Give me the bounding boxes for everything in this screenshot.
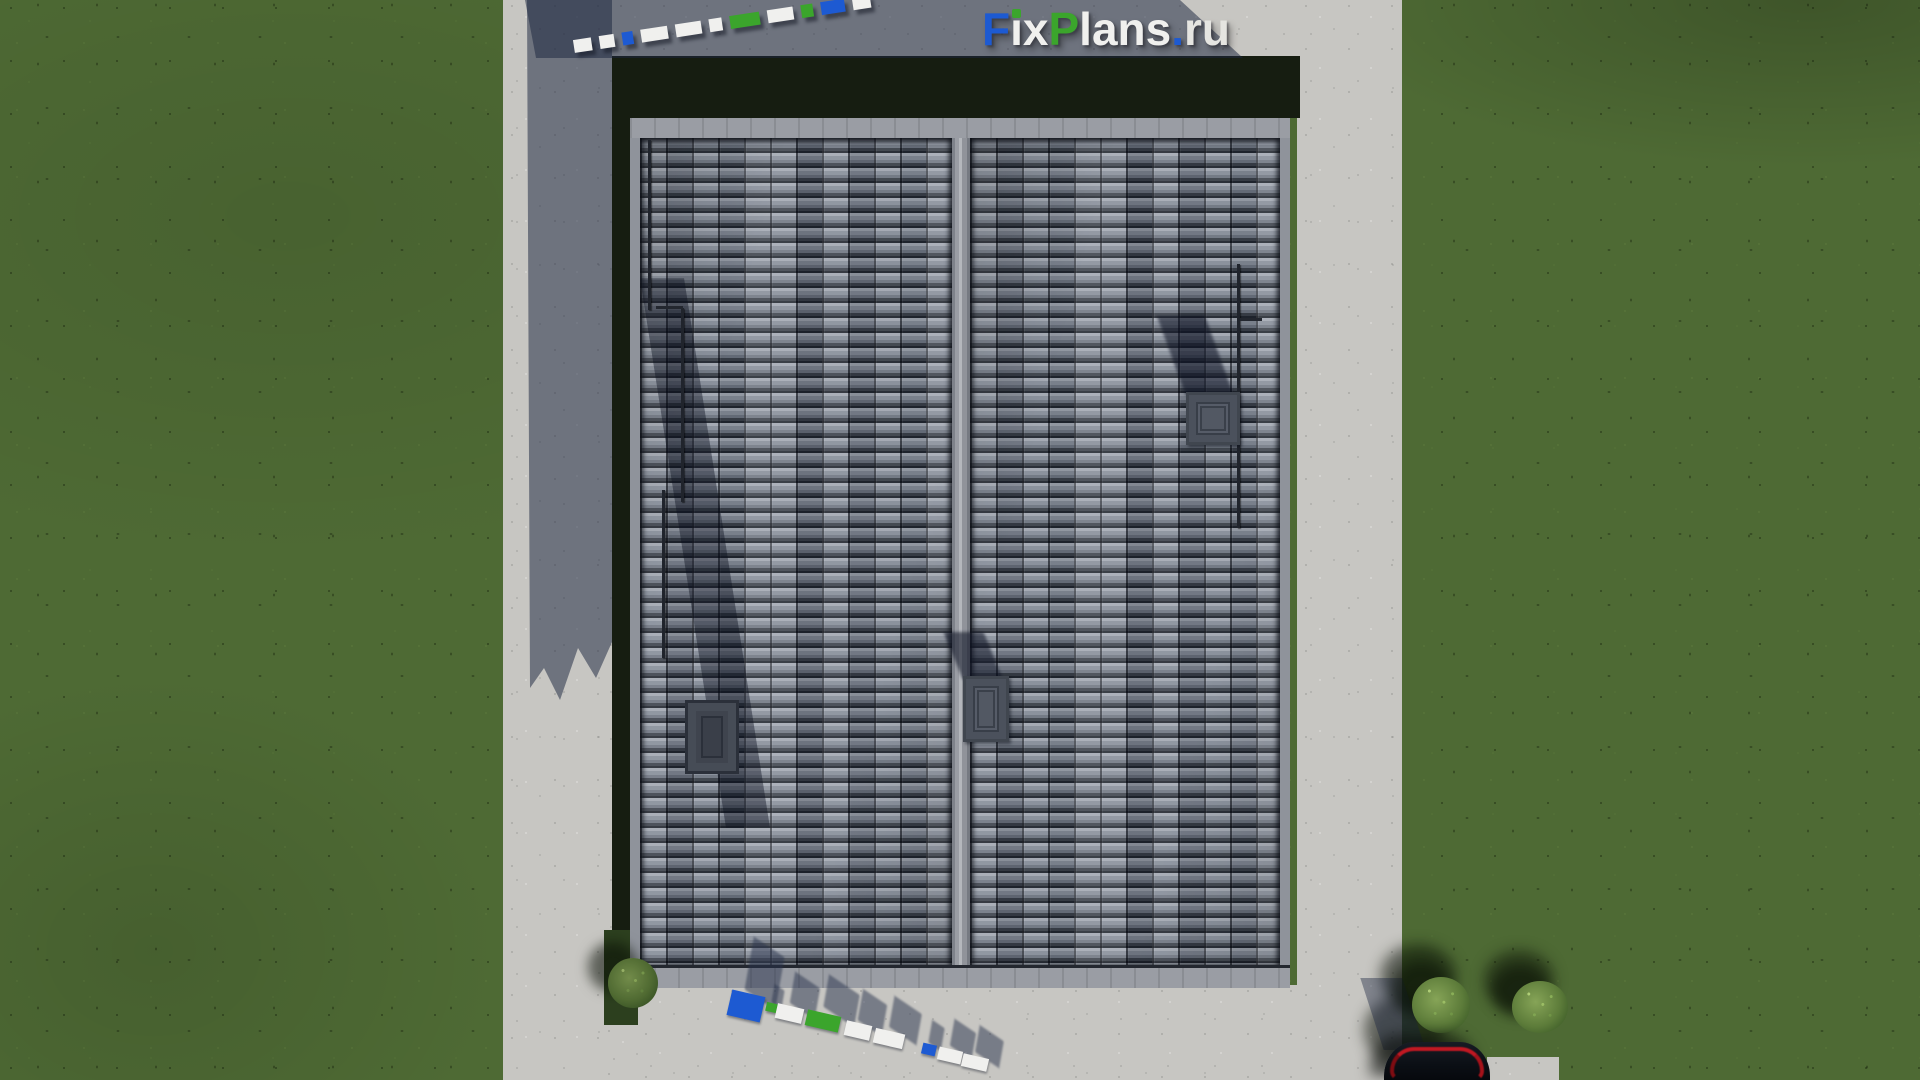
watermark-block: [820, 0, 846, 15]
brand-letter: x: [1023, 2, 1049, 56]
chimney-flue: [977, 690, 995, 728]
watermark-block: [675, 21, 703, 38]
roof-ridge-cap-bottom: [630, 965, 1290, 988]
watermark-block: [573, 38, 593, 54]
watermark-block: [621, 31, 634, 46]
roof-pipe-stub: [656, 306, 683, 309]
roof-fascia-right: [1280, 138, 1290, 965]
roof-pipe-stub: [1240, 318, 1262, 321]
roof-pipe: [648, 140, 651, 310]
chimney: [963, 676, 1009, 742]
roof-fascia-left: [630, 138, 640, 965]
brand-i-dot: [1012, 9, 1021, 18]
brand-watermark: FıxPlans.ru: [982, 2, 1230, 56]
shaded-grass-top: [612, 56, 1300, 118]
brand-letter: P: [1048, 2, 1079, 56]
chimney-flue: [1200, 406, 1226, 431]
brand-letter: F: [982, 2, 1010, 56]
brand-letter: ı: [1010, 2, 1023, 56]
house-roof: [630, 118, 1290, 988]
roof-pipe: [681, 308, 684, 502]
watermark-block: [640, 26, 669, 43]
roof-tiles-right: [970, 138, 1280, 965]
watermark-block: [767, 7, 795, 24]
watermark-block: [800, 4, 814, 19]
aerial-house-render: FıxPlans.ru: [0, 0, 1920, 1080]
chimney: [1186, 392, 1240, 445]
bush: [608, 958, 658, 1008]
brand-letter: .: [1171, 2, 1184, 56]
watermark-block: [729, 12, 761, 29]
bush: [1512, 981, 1568, 1033]
roof-center-ridge: [952, 138, 970, 965]
roof-pipe: [662, 490, 665, 658]
car-top-view: [1384, 1042, 1490, 1080]
bush: [1412, 977, 1470, 1033]
roof-hatch-inner: [701, 716, 723, 758]
car-taillight: [1390, 1047, 1484, 1080]
walkway-corner: [600, 1025, 640, 1080]
roof-hatch: [685, 700, 739, 774]
parking-pad: [1487, 1057, 1559, 1080]
brand-letter: lans: [1079, 2, 1171, 56]
watermark-block: [852, 0, 872, 11]
watermark-block: [708, 18, 723, 33]
watermark-block: [599, 34, 616, 49]
brand-letter: ru: [1184, 2, 1230, 56]
walkway-right: [1297, 0, 1402, 1080]
